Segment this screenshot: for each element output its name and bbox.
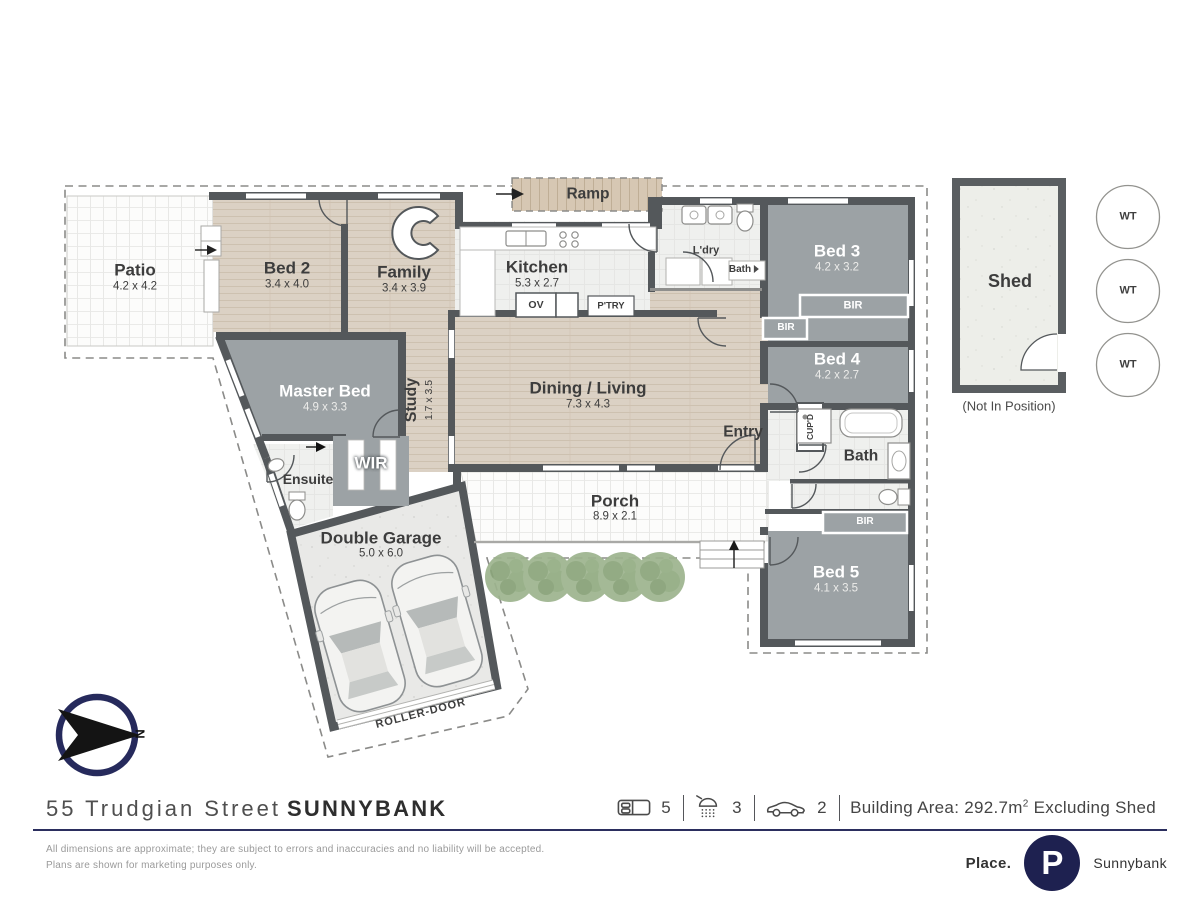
floorplan-graphic (0, 0, 1200, 900)
bath-top-label: Bath (729, 265, 759, 275)
shed-note: (Not In Position) (962, 400, 1055, 413)
cars-count: 2 (817, 798, 826, 818)
address-suburb: SUNNYBANK (287, 796, 447, 821)
shower-icon (694, 794, 722, 822)
dining-label: Dining / Living (529, 380, 646, 397)
toilet (737, 211, 753, 231)
floorplan-page: Patio 4.2 x 4.2 Bed 2 3.4 x 4.0 Family 3… (0, 0, 1200, 900)
patio-dims: 4.2 x 4.2 (113, 281, 157, 293)
porch-dims: 8.9 x 2.1 (593, 511, 637, 523)
disclaimer-line1: All dimensions are approximate; they are… (46, 842, 544, 858)
patio-label: Patio (114, 262, 156, 279)
master-dims: 4.9 x 3.3 (303, 402, 347, 414)
landscaping (485, 552, 685, 602)
bed5-dims: 4.1 x 3.5 (814, 583, 858, 595)
brand-logo: P (1024, 835, 1080, 891)
address-street: 55 Trudgian Street (46, 796, 281, 821)
master-label: Master Bed (279, 383, 371, 400)
family-dims: 3.4 x 3.9 (382, 283, 426, 295)
dining-dims: 7.3 x 4.3 (566, 399, 610, 411)
entry-label: Entry (723, 424, 763, 440)
pantry-label: P'TRY (597, 301, 624, 311)
bed2-dims: 3.4 x 4.0 (265, 279, 309, 291)
garage-dims: 5.0 x 6.0 (359, 548, 403, 560)
laundry-label: L'dry (693, 246, 719, 257)
disclaimer: All dimensions are approximate; they are… (46, 842, 544, 873)
ensuite-toilet-tank (289, 492, 305, 500)
page-title: 55 Trudgian StreetSUNNYBANK (46, 796, 447, 822)
kitchen-bench (460, 227, 656, 250)
bed4-bir-label: BIR (777, 323, 794, 333)
bath-main-label: Bath (844, 448, 878, 464)
wir-label: WIR (354, 455, 387, 472)
disclaimer-line2: Plans are shown for marketing purposes o… (46, 858, 544, 874)
kitchen-label: Kitchen (506, 259, 568, 276)
bed3-bir-label: BIR (844, 301, 863, 312)
divider (839, 795, 841, 821)
bed2-label: Bed 2 (264, 260, 310, 277)
bed3-label: Bed 3 (814, 243, 860, 260)
water-tank-label: WT (1119, 360, 1136, 371)
compass-north-label: N (133, 729, 148, 738)
laundry-tub (682, 206, 706, 224)
property-stats: 5 3 2 Building Area: 292.7m2 Excluding S… (617, 790, 1156, 826)
building-area: Building Area: 292.7m2 Excluding Shed (850, 798, 1156, 818)
ensuite-label: Ensuite (283, 472, 334, 486)
shed-label: Shed (988, 272, 1032, 290)
baths-count: 3 (732, 798, 741, 818)
bush (635, 552, 685, 602)
ramp-label: Ramp (566, 186, 609, 202)
agency-brand: Place. P Sunnybank (966, 835, 1167, 891)
family-label: Family (377, 264, 431, 281)
oven-label: OV (528, 300, 543, 311)
porch-stairs (700, 540, 764, 568)
kitchen-dims: 5.3 x 2.7 (515, 278, 559, 290)
brand-office: Sunnybank (1093, 855, 1167, 871)
wc-toilet (879, 490, 897, 505)
cupboard-label: CUP'D (806, 414, 815, 440)
bed-icon (617, 796, 651, 820)
bed4-dims: 4.2 x 2.7 (815, 370, 859, 382)
car-icon (765, 796, 807, 820)
bed5-label: Bed 5 (813, 564, 859, 581)
beds-count: 5 (661, 798, 670, 818)
footer-divider-line (33, 829, 1167, 831)
brand-name: Place. (966, 855, 1012, 872)
divider (683, 795, 685, 821)
divider (754, 795, 756, 821)
garage-label: Double Garage (321, 530, 442, 547)
wc-toilet-tank (898, 489, 910, 505)
water-tank-label: WT (1119, 212, 1136, 223)
porch-label: Porch (591, 493, 639, 510)
bed4-label: Bed 4 (814, 351, 860, 368)
water-tank-label: WT (1119, 286, 1136, 297)
bed3-dims: 4.2 x 3.2 (815, 262, 859, 274)
bath-direction-icon (754, 265, 759, 273)
compass (58, 697, 140, 773)
study-label: Study1.7 x 3.5 (404, 378, 435, 422)
bed5-bir-label: BIR (856, 517, 873, 527)
vanity (888, 443, 910, 479)
ensuite-toilet (289, 500, 305, 520)
